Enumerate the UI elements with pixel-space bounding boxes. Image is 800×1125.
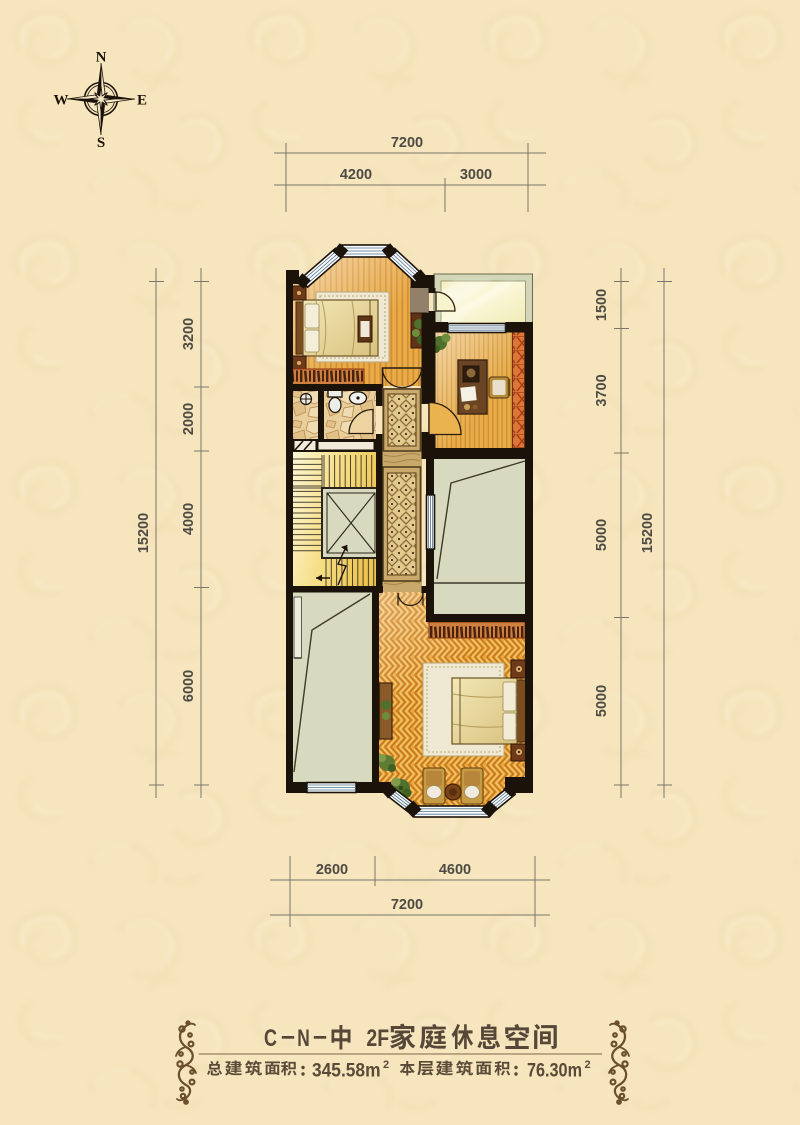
svg-text:2600: 2600 (316, 862, 348, 878)
svg-text:C: C (264, 1025, 277, 1052)
svg-text:N: N (297, 1025, 310, 1052)
svg-text:345.58m: 345.58m (312, 1061, 381, 1082)
svg-text:76.30m: 76.30m (527, 1061, 582, 1082)
svg-text:4200: 4200 (340, 167, 372, 183)
svg-text:5000: 5000 (594, 685, 610, 717)
svg-text:15200: 15200 (640, 513, 656, 553)
svg-text:W: W (54, 93, 69, 109)
svg-text:6000: 6000 (181, 670, 197, 702)
svg-text:2000: 2000 (181, 403, 197, 435)
svg-text:4600: 4600 (439, 862, 471, 878)
svg-text:4000: 4000 (181, 503, 197, 535)
svg-text:5000: 5000 (594, 519, 610, 551)
svg-text:3000: 3000 (460, 167, 492, 183)
svg-text:2: 2 (585, 1059, 591, 1071)
svg-text:N: N (96, 50, 107, 66)
svg-text:S: S (97, 135, 105, 151)
svg-text:2F: 2F (366, 1025, 389, 1052)
svg-text:3200: 3200 (181, 318, 197, 350)
svg-text:3700: 3700 (594, 374, 610, 406)
svg-text:E: E (137, 93, 147, 109)
svg-text:15200: 15200 (136, 513, 152, 553)
svg-text:1500: 1500 (594, 289, 610, 321)
svg-text:7200: 7200 (391, 897, 423, 913)
svg-text:2: 2 (383, 1059, 389, 1071)
svg-text:7200: 7200 (391, 135, 423, 151)
